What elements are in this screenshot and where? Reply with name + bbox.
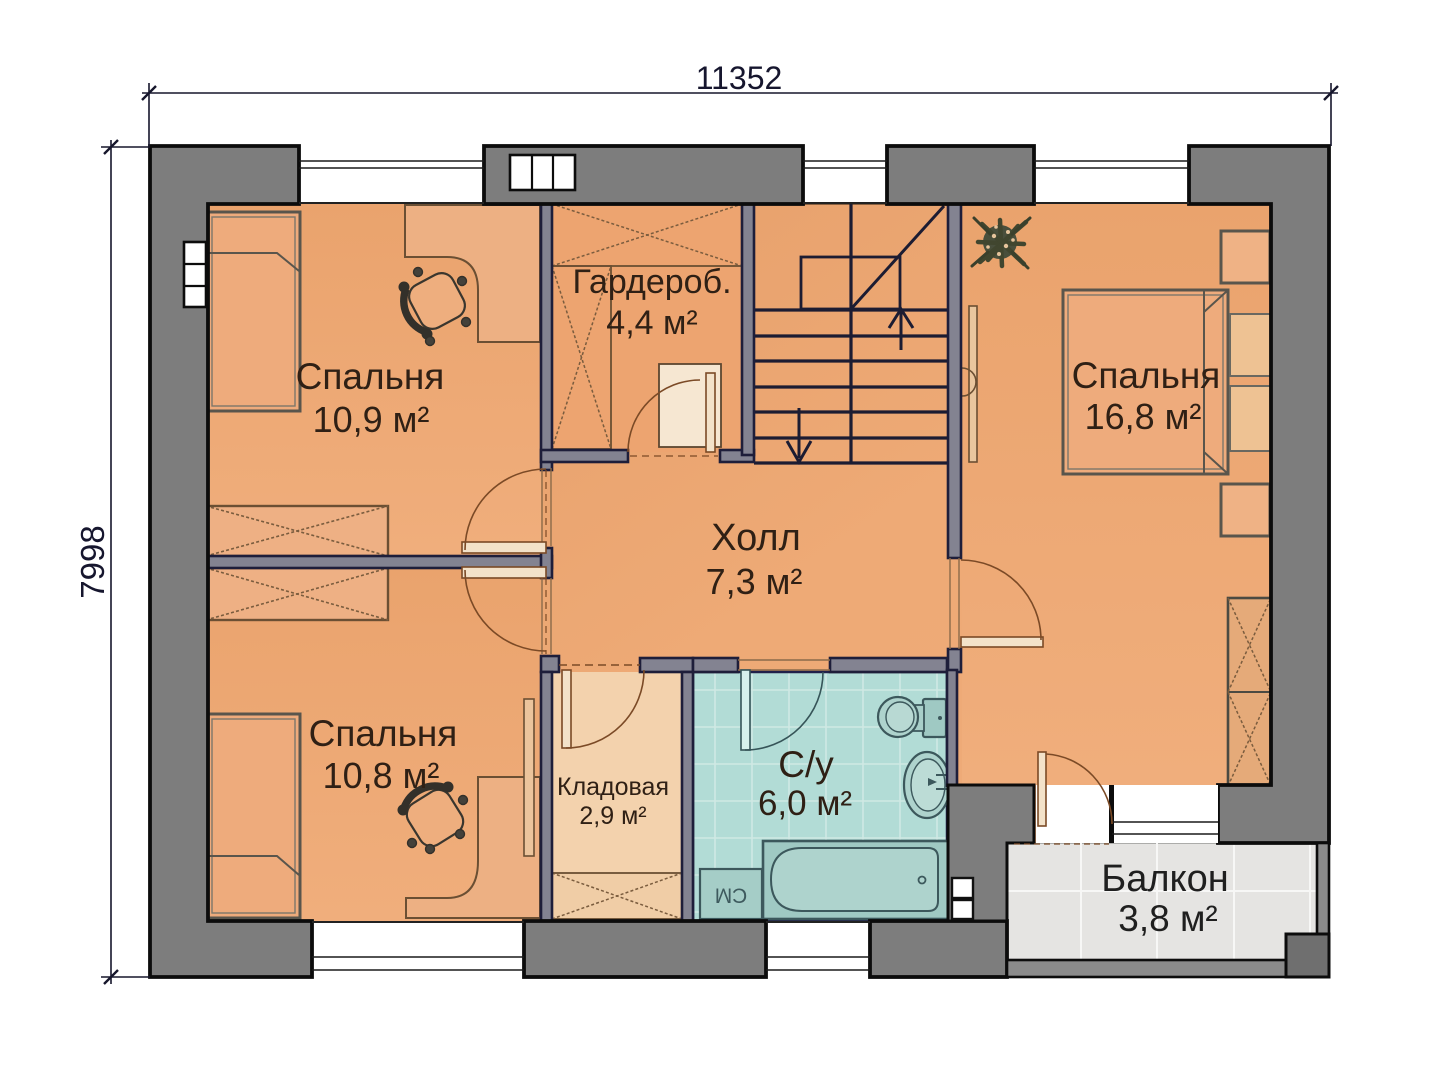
svg-text:11352: 11352 — [696, 60, 783, 96]
svg-text:2,9 м²: 2,9 м² — [579, 802, 646, 830]
svg-text:16,8 м²: 16,8 м² — [1085, 396, 1202, 437]
svg-text:10,9 м²: 10,9 м² — [313, 399, 430, 440]
svg-text:СМ: СМ — [715, 883, 747, 906]
svg-text:4,4 м²: 4,4 м² — [606, 304, 697, 342]
svg-text:7,3 м²: 7,3 м² — [706, 561, 803, 602]
svg-text:7998: 7998 — [74, 525, 111, 598]
svg-text:С/у: С/у — [778, 744, 834, 785]
svg-text:Гардероб.: Гардероб. — [572, 263, 731, 301]
svg-text:Балкон: Балкон — [1101, 858, 1228, 900]
svg-text:Спальня: Спальня — [309, 713, 458, 754]
svg-text:6,0 м²: 6,0 м² — [758, 784, 852, 823]
svg-text:Холл: Холл — [711, 517, 801, 559]
svg-text:Спальня: Спальня — [1072, 355, 1221, 396]
svg-text:10,8 м²: 10,8 м² — [323, 755, 440, 796]
svg-text:Кладовая: Кладовая — [557, 773, 669, 801]
svg-text:Спальня: Спальня — [296, 356, 445, 397]
svg-text:3,8 м²: 3,8 м² — [1118, 898, 1217, 939]
